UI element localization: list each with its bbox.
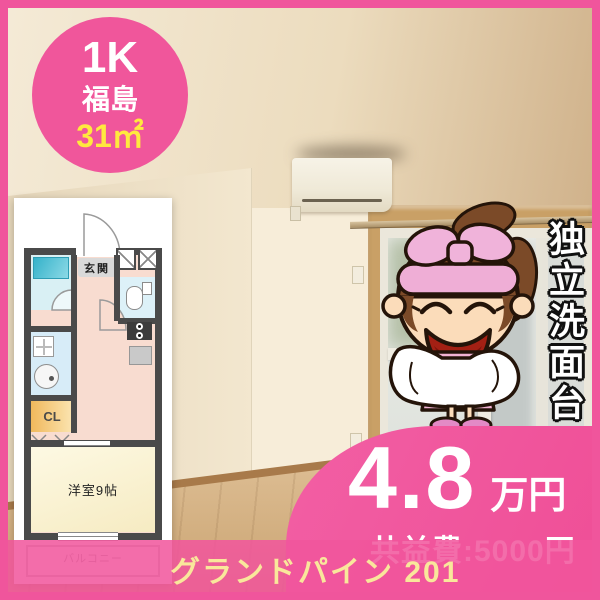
price-amount: 4.8 (348, 432, 476, 524)
feature-vertical-text: 独立洗面台 (542, 220, 590, 436)
closet-label: CL (43, 409, 60, 424)
property-name: グランドパイン 201 (170, 547, 460, 591)
closet: CL (31, 401, 73, 432)
storage (138, 248, 158, 270)
hall-door-arc (98, 298, 126, 330)
washing-machine-icon (34, 364, 59, 389)
interior-wall (31, 395, 73, 401)
sink-icon (33, 336, 54, 357)
entrance-text: 玄関 (84, 260, 110, 276)
ac-cord-box (290, 206, 301, 221)
price-unit: 万円 (490, 464, 566, 519)
interior-wall (114, 255, 120, 321)
property-name-bar: グランドパイン 201 (8, 540, 592, 592)
interior-wall (31, 326, 73, 332)
sliding-door (64, 441, 110, 446)
entrance-label: 玄関 (78, 258, 116, 277)
toilet-tank (142, 282, 152, 295)
listing-image: 1K 福島 31㎡ CL (0, 0, 600, 600)
kitchen-counter (129, 346, 152, 365)
badge-area-text: 福島 (82, 82, 138, 118)
floorplan-card: CL 玄関 (14, 198, 172, 584)
info-badge: 1K 福島 31㎡ (32, 17, 188, 173)
toilet-icon (126, 286, 143, 310)
main-room: 洋室9帖 (31, 447, 155, 532)
entrance-door-arc (80, 208, 120, 256)
wall-switch (352, 266, 364, 284)
cleaning-girl-mascot (372, 200, 548, 432)
stove-icon (127, 322, 152, 340)
badge-size-text: 31㎡ (76, 119, 144, 154)
bathtub-icon (33, 257, 69, 279)
badge-layout-text: 1K (82, 36, 138, 80)
wall-corner (251, 168, 252, 498)
room-label: 洋室9帖 (68, 480, 118, 499)
interior-wall (71, 255, 77, 433)
room-photo: 1K 福島 31㎡ CL (8, 8, 592, 592)
